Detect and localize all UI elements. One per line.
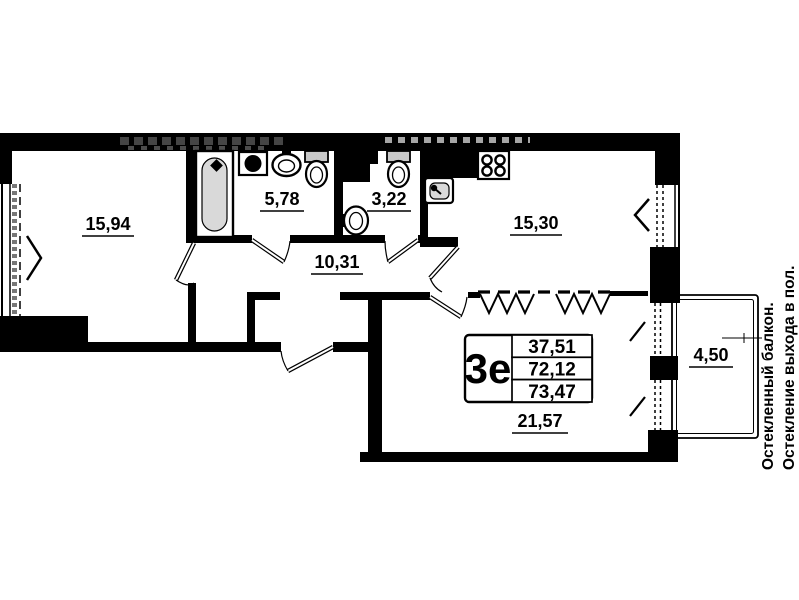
kitchen-door bbox=[430, 247, 458, 292]
balcony-note-2: Остекление выхода в пол. bbox=[781, 266, 798, 470]
toilet-icon bbox=[305, 151, 328, 187]
balcony-notes: Остекленный балкон. Остекление выхода в … bbox=[760, 266, 798, 470]
chevron-right-icon bbox=[27, 236, 41, 280]
kitchen-window bbox=[635, 185, 679, 247]
wc-area-label: 3,22 bbox=[371, 189, 406, 209]
living-area-value: 37,51 bbox=[528, 337, 576, 358]
room-area-labels: 15,94 5,78 3,22 15,30 10,31 21,57 4,50 bbox=[82, 189, 733, 433]
washbasin-icon bbox=[273, 151, 301, 176]
floor-area-value: 72,12 bbox=[528, 360, 576, 381]
total-area-value: 73,47 bbox=[528, 382, 576, 403]
entrance-door bbox=[281, 347, 333, 371]
floor-plan-svg: 3е 37,51 72,12 73,47 15,94 5,78 3,22 15,… bbox=[0, 0, 799, 600]
toilet-icon bbox=[387, 151, 410, 187]
planned-partition-zigzag bbox=[478, 292, 612, 313]
balcony-note-1: Остекленный балкон. bbox=[760, 302, 777, 470]
living-area-label: 21,57 bbox=[517, 411, 562, 431]
bathtub-icon bbox=[196, 151, 233, 237]
bidet-icon bbox=[343, 207, 368, 235]
walls bbox=[0, 133, 680, 462]
floor-plan-page: 3е 37,51 72,12 73,47 15,94 5,78 3,22 15,… bbox=[0, 0, 799, 600]
balcony-area-label: 4,50 bbox=[693, 345, 728, 365]
hallway-area-label: 10,31 bbox=[314, 252, 359, 272]
living-room-door bbox=[430, 297, 467, 317]
bedroom-window bbox=[2, 184, 41, 316]
apartment-type-label: 3е bbox=[465, 345, 512, 392]
kitchen-sink-icon bbox=[425, 178, 453, 203]
apartment-stamp: 3е 37,51 72,12 73,47 bbox=[465, 335, 592, 403]
bathroom-area-label: 5,78 bbox=[264, 189, 299, 209]
stove-icon bbox=[478, 151, 509, 179]
sash-mark bbox=[630, 322, 645, 341]
bathroom-door bbox=[252, 240, 290, 262]
sash-mark bbox=[630, 397, 645, 416]
bedroom-area-label: 15,94 bbox=[85, 214, 130, 234]
washing-machine-icon bbox=[239, 152, 267, 175]
kitchen-area-label: 15,30 bbox=[513, 213, 558, 233]
chevron-left-icon bbox=[635, 199, 649, 231]
wc-door bbox=[385, 240, 418, 262]
bedroom-door bbox=[176, 243, 194, 285]
